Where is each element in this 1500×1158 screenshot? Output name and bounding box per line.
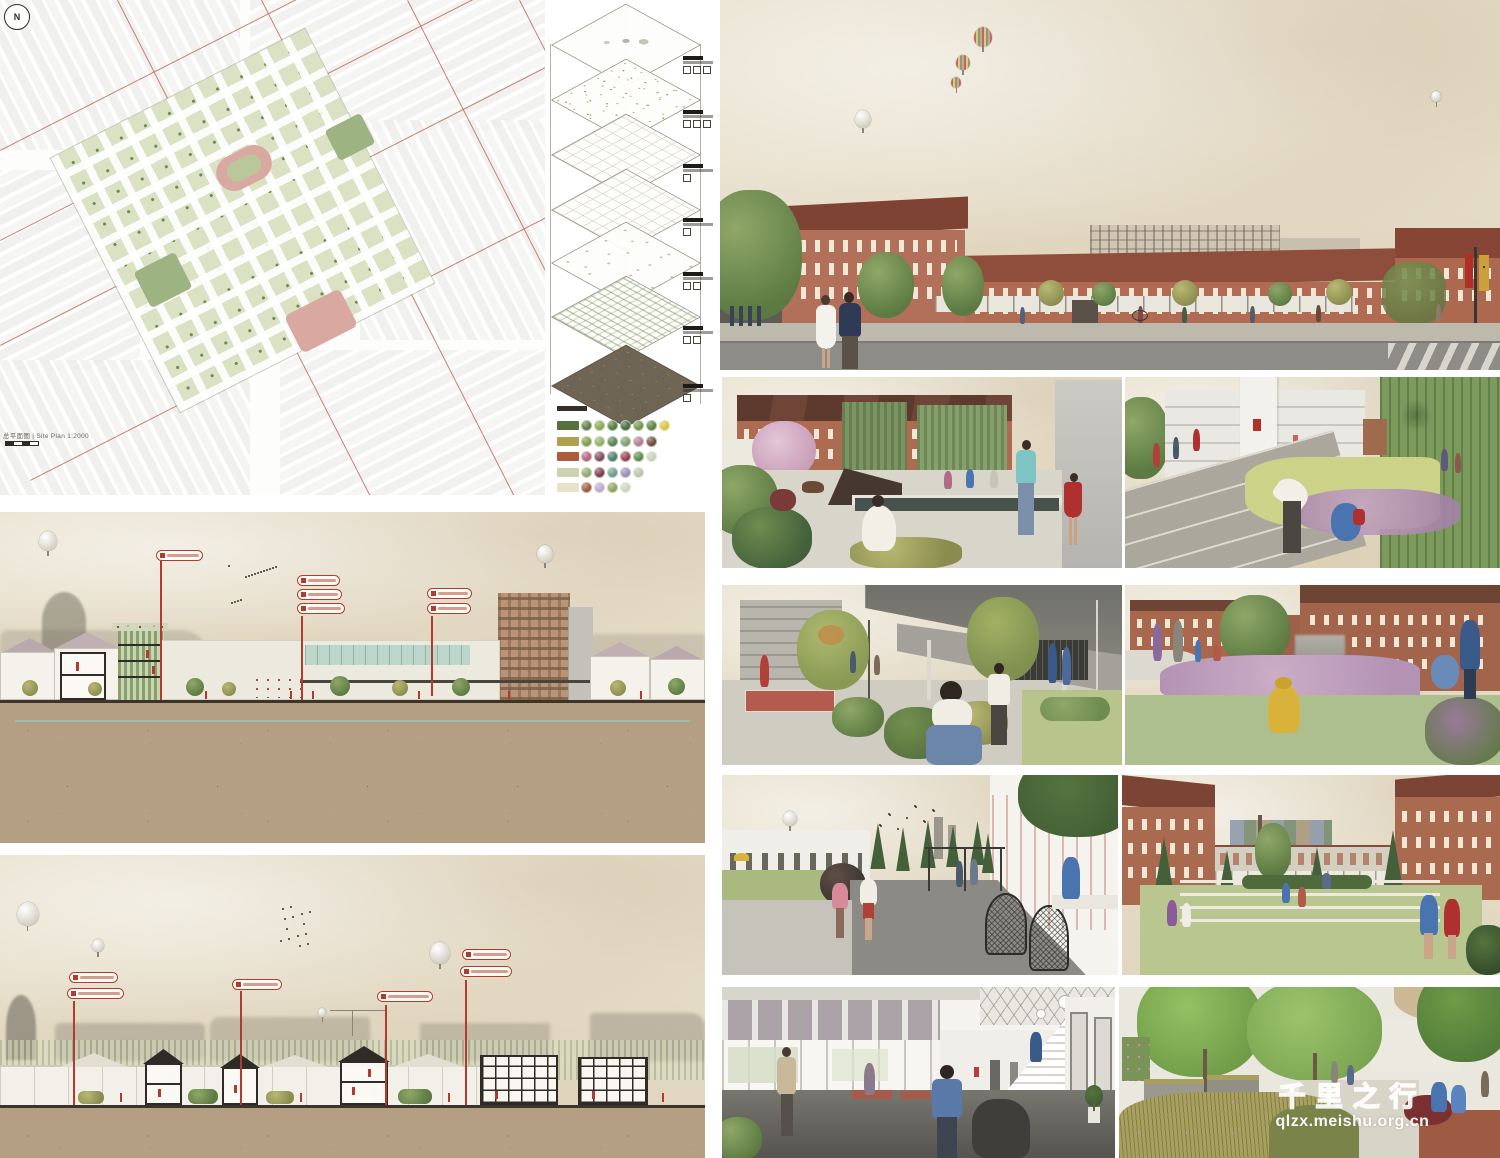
hot-air-balloon	[951, 77, 961, 88]
label-text-smudge	[683, 389, 713, 392]
label-text-smudge	[683, 115, 713, 118]
window-band	[1220, 853, 1390, 865]
shrub-row	[1242, 875, 1372, 889]
bird	[269, 568, 271, 570]
left-wall-upper	[722, 1000, 940, 1040]
figure-red	[640, 691, 642, 699]
red-bench	[900, 1091, 930, 1099]
street-tree	[1038, 280, 1064, 306]
greenwall-building	[118, 630, 164, 700]
label-bar	[683, 164, 703, 168]
render-garden-terrace	[1119, 987, 1500, 1158]
kid-seated-blue	[1451, 1085, 1466, 1113]
section-grid-building	[578, 1057, 648, 1105]
hot-air-balloon	[430, 942, 450, 964]
tree-canopy	[797, 610, 869, 690]
person-on-stairs	[1030, 1032, 1042, 1062]
axon-layer-label	[683, 110, 720, 128]
section-drawing-lower	[0, 855, 705, 1158]
bird	[906, 817, 908, 819]
child-red-dress	[1193, 429, 1200, 451]
boy-foreground-head	[940, 1065, 954, 1079]
tree	[1255, 823, 1291, 879]
plant-photo-circle	[620, 482, 631, 493]
legend-row	[557, 482, 631, 493]
section-floor-line	[60, 674, 106, 676]
clerestory-glass	[305, 645, 470, 665]
label-text-smudge	[683, 223, 713, 226]
label-bar	[683, 56, 703, 60]
elevated-walkway	[300, 680, 640, 683]
plant-photo-circle	[646, 451, 657, 462]
seated-child	[944, 471, 952, 489]
kid	[1298, 887, 1306, 907]
callout-tag	[232, 979, 282, 990]
tag-icon	[466, 952, 471, 957]
flower-wall	[1122, 1037, 1150, 1081]
label-icons	[683, 120, 720, 128]
bird	[879, 824, 881, 826]
hot-air-balloon	[783, 811, 797, 826]
legend-mini-icon	[683, 394, 691, 402]
bird	[297, 935, 299, 937]
dog	[802, 481, 824, 493]
render-running-track	[1125, 377, 1500, 568]
kid	[1282, 883, 1290, 903]
plant-photo-circle	[581, 436, 592, 447]
kid-bending-pants	[1283, 501, 1301, 553]
label-text-smudge	[683, 331, 713, 334]
topiary-stem	[1093, 1103, 1095, 1111]
woman-at-bench	[864, 1063, 875, 1095]
legend-mini-icon	[693, 336, 701, 344]
hot-air-balloon	[855, 110, 871, 128]
plant-photo-circle	[620, 451, 631, 462]
label-icons	[683, 282, 720, 290]
hedge	[398, 1089, 432, 1104]
bird	[288, 938, 290, 940]
north-arrow: N	[4, 4, 30, 30]
callout-stem	[160, 561, 162, 700]
bird	[305, 933, 307, 935]
bush-mixed	[1425, 697, 1500, 765]
pedestrian	[1436, 304, 1441, 322]
tree	[88, 682, 102, 696]
callout-stem	[73, 1001, 75, 1105]
callout-tag	[377, 991, 433, 1002]
concrete-wall	[1055, 380, 1122, 568]
globe-lamp	[1036, 1009, 1046, 1019]
red-planting	[252, 674, 302, 698]
hedge	[78, 1091, 104, 1104]
bird	[923, 820, 925, 822]
girl-sitting-jeans	[926, 725, 982, 765]
woman-purple	[1153, 623, 1162, 661]
wire-chair	[985, 893, 1027, 955]
tag-icon	[236, 982, 241, 987]
pedestrian	[1250, 306, 1255, 323]
corner-plant	[722, 1117, 762, 1158]
plant-photo-circle	[607, 420, 618, 431]
tall-window	[1094, 1017, 1112, 1095]
woman-aqua-top	[1016, 450, 1036, 484]
axon-layer-label	[683, 56, 720, 74]
man-red-shirt	[760, 655, 769, 687]
man-navy-shirt	[839, 303, 861, 337]
figure-red	[76, 662, 79, 671]
plant-photo-circle	[581, 451, 592, 462]
tree	[942, 256, 984, 316]
cyclist	[956, 861, 963, 887]
hot-air-balloon	[318, 1008, 326, 1017]
toddler-white	[862, 505, 896, 551]
boy-blue-crouching	[1431, 655, 1459, 689]
legend-color-swatch	[557, 452, 579, 461]
bird	[282, 908, 284, 910]
boy-foreground-pants	[937, 1117, 957, 1158]
pedestrian	[1020, 307, 1025, 324]
boy-legs	[1424, 933, 1433, 959]
plant-photo-circle	[620, 467, 631, 478]
tag-text-smudge	[80, 976, 114, 979]
bird	[263, 570, 265, 572]
seated-child	[990, 470, 998, 488]
plant-photo-circle	[633, 436, 644, 447]
label-text-smudge	[683, 277, 713, 280]
plant-photo-circle	[633, 451, 644, 462]
label-bar	[683, 326, 703, 330]
callout-tag	[156, 550, 203, 561]
render-courtyard-playground	[722, 377, 1122, 568]
tag-text-smudge	[243, 983, 278, 986]
column	[927, 640, 931, 700]
boy-navy-legs	[1464, 669, 1476, 699]
roof	[1300, 585, 1500, 605]
child-red-dress	[1064, 482, 1082, 518]
bird	[234, 601, 236, 603]
girl-pink-top	[832, 883, 848, 909]
site-plan-panel: N 总平面图 | Site Plan 1:2000	[0, 0, 545, 495]
callout-stem	[385, 1005, 387, 1105]
roof	[1395, 228, 1500, 258]
figure-red	[662, 1093, 664, 1102]
plant-photo-circle	[633, 420, 644, 431]
axon-layer-label	[683, 326, 720, 344]
man-head	[844, 292, 854, 303]
kid-backpack-red	[1353, 509, 1365, 525]
tree	[222, 682, 236, 696]
legend-mini-icon	[703, 66, 711, 74]
bird	[275, 566, 277, 568]
site-plan-caption: 总平面图 | Site Plan 1:2000	[3, 430, 89, 440]
seated-kid	[1322, 873, 1331, 889]
legend-row	[557, 420, 670, 431]
legend-mini-icon	[683, 282, 691, 290]
tag-icon	[431, 606, 436, 611]
plant-photo-circle	[646, 436, 657, 447]
banner-yellow	[1479, 255, 1489, 291]
cyclist	[1132, 310, 1148, 321]
bird	[888, 813, 890, 815]
runner	[1173, 437, 1179, 459]
tag-text-smudge	[308, 607, 341, 610]
bird	[237, 600, 239, 602]
greenery-through-glass	[832, 1049, 888, 1081]
plant-photo-circle	[633, 467, 644, 478]
tag-icon	[160, 553, 165, 558]
label-text-smudge	[683, 61, 713, 64]
child-head	[1070, 473, 1078, 482]
hot-air-balloon	[17, 902, 39, 926]
hot-air-balloon	[974, 27, 992, 47]
bird	[254, 573, 256, 575]
red-foliage	[770, 489, 796, 511]
ceiling-band	[722, 987, 980, 1000]
bird	[309, 911, 311, 913]
tag-text-smudge	[473, 953, 507, 956]
label-bar	[683, 384, 703, 388]
callout-tag	[462, 949, 511, 960]
callout-tag	[69, 972, 118, 983]
plant-photo-circle	[620, 420, 631, 431]
figure-red	[120, 1093, 122, 1102]
street-tree	[1172, 280, 1198, 306]
figure-red	[146, 650, 149, 658]
wire-chair	[1029, 905, 1069, 971]
tag-icon	[381, 994, 386, 999]
bird	[272, 567, 274, 569]
legend-mini-icon	[683, 120, 691, 128]
tree	[610, 680, 626, 696]
bird	[231, 602, 233, 604]
tag-icon	[71, 991, 76, 996]
bird	[260, 571, 262, 573]
bird	[299, 945, 301, 947]
street-tree	[1092, 282, 1116, 306]
boy-standing-shorts	[991, 705, 1007, 745]
tag-text-smudge	[308, 579, 336, 582]
label-icons	[683, 66, 720, 74]
pedestrian	[1481, 1071, 1489, 1097]
plant-photo-circle	[659, 420, 670, 431]
tag-text-smudge	[471, 970, 508, 973]
bird	[307, 943, 309, 945]
callout-stem	[240, 991, 242, 1105]
callout-stem	[465, 980, 467, 1105]
soil-section	[0, 703, 705, 843]
plant-photo-circle	[594, 451, 605, 462]
hedge	[1040, 697, 1110, 721]
legend-row	[557, 436, 657, 447]
bird	[303, 923, 305, 925]
render-lavender-courtyard	[1125, 585, 1500, 765]
render-street-elevation	[720, 0, 1500, 370]
bird	[240, 599, 242, 601]
figure-red	[508, 691, 510, 699]
seated-person	[1213, 645, 1221, 661]
bird	[292, 916, 294, 918]
label-icons	[683, 394, 720, 402]
tree	[22, 680, 38, 696]
pedestrian	[1347, 1065, 1354, 1085]
legend-title-bar	[557, 406, 587, 411]
swing-frame-leg	[928, 847, 930, 891]
bird	[248, 575, 250, 577]
figure-red	[234, 1085, 237, 1093]
legend-row	[557, 467, 644, 478]
plant-photo-circle	[607, 436, 618, 447]
plant-photo-circle	[594, 467, 605, 478]
window-row	[1402, 837, 1494, 848]
scale-bar	[5, 441, 39, 446]
girl-legs	[836, 908, 844, 938]
pedestrian	[1316, 305, 1321, 322]
arcade-canopy	[935, 296, 1355, 312]
figure-red	[592, 1091, 595, 1099]
label-icons	[683, 228, 720, 236]
label-icons	[683, 336, 720, 344]
plant-photo-circle	[594, 436, 605, 447]
plant-photo-circle	[607, 451, 618, 462]
bird	[897, 828, 899, 830]
officer-blue	[1048, 643, 1057, 683]
figure-red	[158, 1089, 161, 1097]
axon-connector	[550, 44, 551, 394]
hot-air-balloon	[537, 545, 553, 563]
child	[1195, 640, 1201, 662]
legend-mini-icon	[703, 120, 711, 128]
hot-air-balloon	[956, 55, 970, 70]
tag-icon	[301, 578, 306, 583]
greenery	[1125, 397, 1169, 479]
tree	[392, 680, 408, 696]
section-floor-line	[342, 1081, 386, 1083]
sidewalk	[720, 323, 1500, 342]
window-row	[1402, 811, 1494, 822]
presentation-board: N 总平面图 | Site Plan 1:2000	[0, 0, 1500, 1158]
pedestrian	[1331, 1061, 1338, 1083]
girl-legs	[1448, 935, 1456, 959]
window-row	[1402, 863, 1494, 874]
man-gray	[1173, 620, 1183, 662]
label-bar	[683, 110, 703, 114]
tag-text-smudge	[167, 554, 199, 557]
bird	[290, 906, 292, 908]
plant-photo-circle	[594, 420, 605, 431]
callout-tag	[460, 966, 512, 977]
orange-foliage	[818, 625, 844, 645]
tree-canopy	[1137, 987, 1262, 1077]
axon-layer-label	[683, 272, 720, 290]
pedestrian	[1182, 307, 1187, 323]
legend-mini-icon	[683, 66, 691, 74]
red-track-strip	[745, 690, 835, 712]
tag-text-smudge	[438, 607, 467, 610]
section-drawing-upper	[0, 512, 705, 843]
boy-navy-standing	[1460, 620, 1480, 670]
figure-red	[290, 691, 292, 699]
tower-brick	[498, 593, 570, 700]
legend-color-swatch	[557, 483, 579, 492]
tall-window	[1070, 1012, 1088, 1092]
bird	[245, 576, 247, 578]
door-slot	[990, 1060, 1000, 1090]
distant-tower	[934, 817, 943, 859]
tag-icon	[301, 606, 306, 611]
red-accent	[974, 1067, 979, 1077]
section-cut-house	[340, 1061, 388, 1105]
child-yellow-hat	[1275, 677, 1292, 689]
bird	[257, 572, 259, 574]
tag-text-smudge	[388, 995, 429, 998]
bird	[280, 940, 282, 942]
bird	[914, 805, 916, 807]
callout-tag	[297, 589, 342, 600]
figure-red	[300, 1093, 302, 1102]
legend-mini-icon	[683, 174, 691, 182]
axon-layer-label	[683, 384, 720, 402]
tag-icon	[301, 592, 306, 597]
figure-red	[418, 691, 420, 699]
plant-photo-circle	[581, 482, 592, 493]
label-bar	[683, 272, 703, 276]
man-walking-jacket	[777, 1057, 796, 1095]
legend-color-swatch	[557, 421, 579, 430]
axon-layer-label	[683, 164, 720, 182]
render-interior-arcade	[722, 987, 1115, 1158]
callout-tag	[297, 603, 345, 614]
tree	[668, 678, 685, 695]
brick-hint	[1363, 419, 1387, 455]
plant-photo-circle	[607, 467, 618, 478]
road	[720, 343, 1500, 370]
axon-layer-label	[683, 218, 720, 236]
tag-icon	[431, 591, 436, 596]
kid-white	[1182, 903, 1191, 927]
planting	[732, 507, 812, 568]
pedestrian-group	[730, 306, 764, 326]
sidewalk	[722, 900, 852, 975]
red-accent	[1253, 419, 1261, 431]
callout-tag	[427, 603, 471, 614]
axon-layer-6	[551, 345, 701, 427]
tag-text-smudge	[438, 592, 468, 595]
swing-frame-leg	[964, 847, 966, 891]
legend-mini-icon	[683, 228, 691, 236]
street-tree	[1268, 282, 1292, 306]
plant-photo-circle	[581, 420, 592, 431]
callout-tag	[297, 575, 340, 586]
construction-crane	[330, 1010, 385, 1011]
render-garden-path	[722, 775, 1118, 975]
boy-standing-head	[994, 663, 1004, 674]
banner-pole	[1474, 247, 1477, 332]
tree	[452, 678, 470, 696]
crosswalk	[1388, 343, 1500, 370]
runner	[1153, 443, 1160, 467]
plant-photo-circle	[646, 420, 657, 431]
tree	[858, 252, 914, 318]
plant-photo-circle	[594, 482, 605, 493]
legend-mini-icon	[693, 282, 701, 290]
bird	[251, 574, 253, 576]
tree	[186, 678, 204, 696]
legend-row	[557, 451, 657, 462]
tree	[330, 676, 350, 696]
man-walking-pants	[781, 1094, 793, 1136]
callout-tag	[427, 588, 472, 599]
child-legs	[1069, 517, 1077, 545]
